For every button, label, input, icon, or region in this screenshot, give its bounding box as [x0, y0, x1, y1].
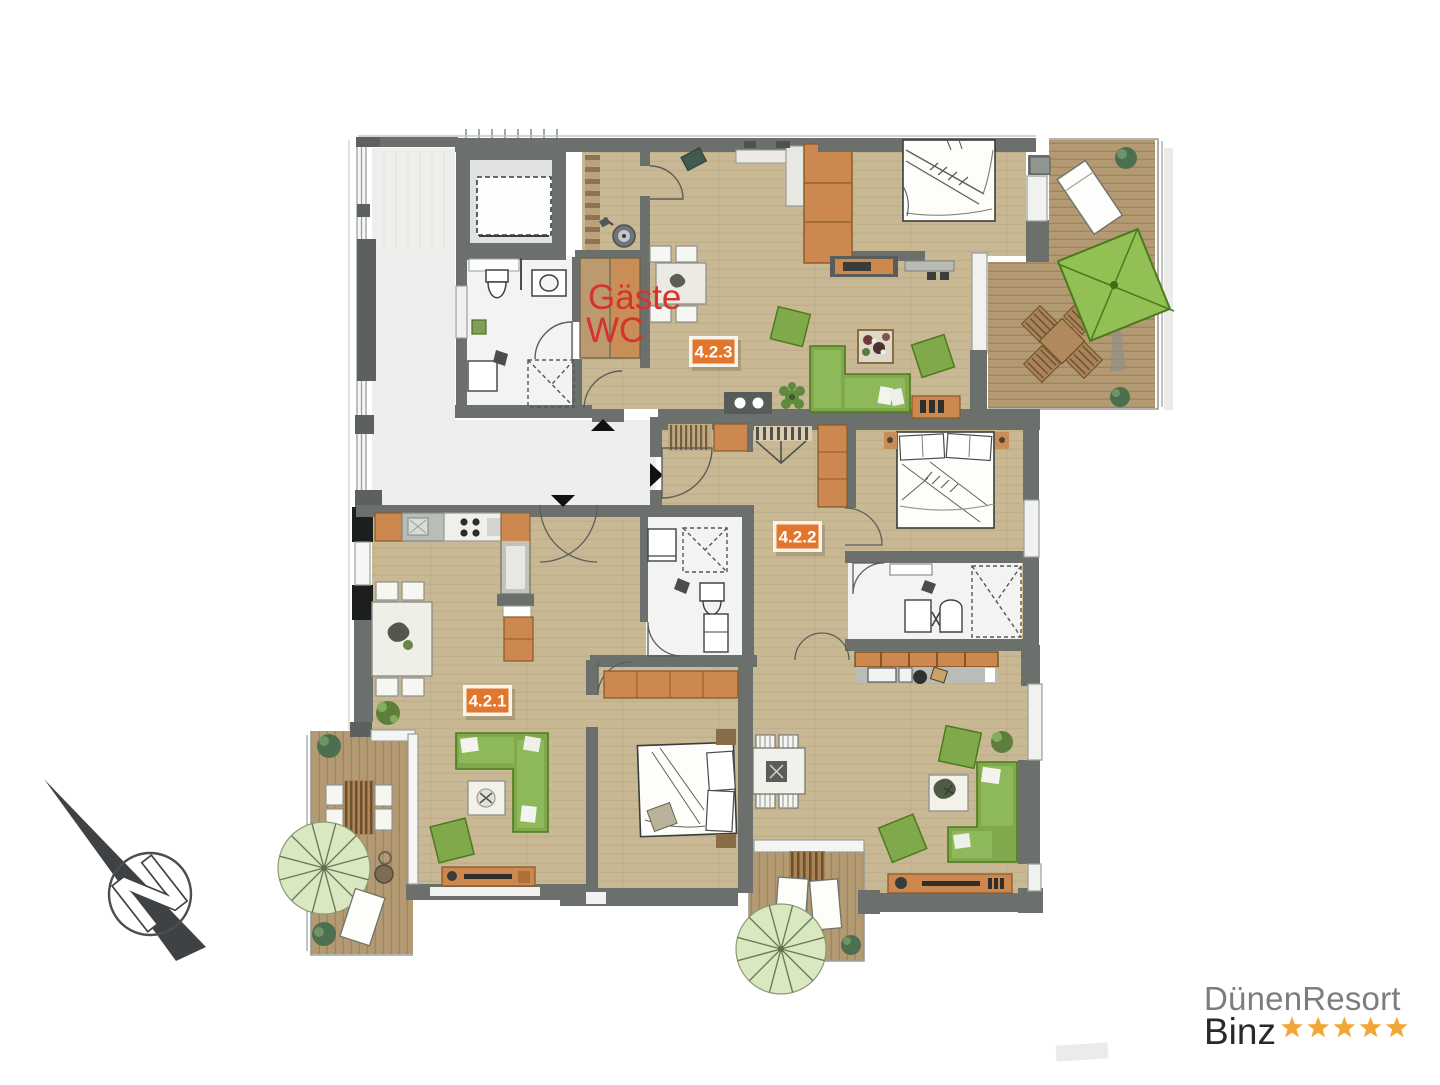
svg-text:WC: WC: [586, 311, 644, 350]
svg-text:4.2.2: 4.2.2: [779, 528, 817, 547]
svg-text:Binz: Binz: [1204, 1011, 1276, 1052]
svg-text:4.2.1: 4.2.1: [469, 692, 507, 711]
svg-text:4.2.3: 4.2.3: [695, 343, 733, 362]
